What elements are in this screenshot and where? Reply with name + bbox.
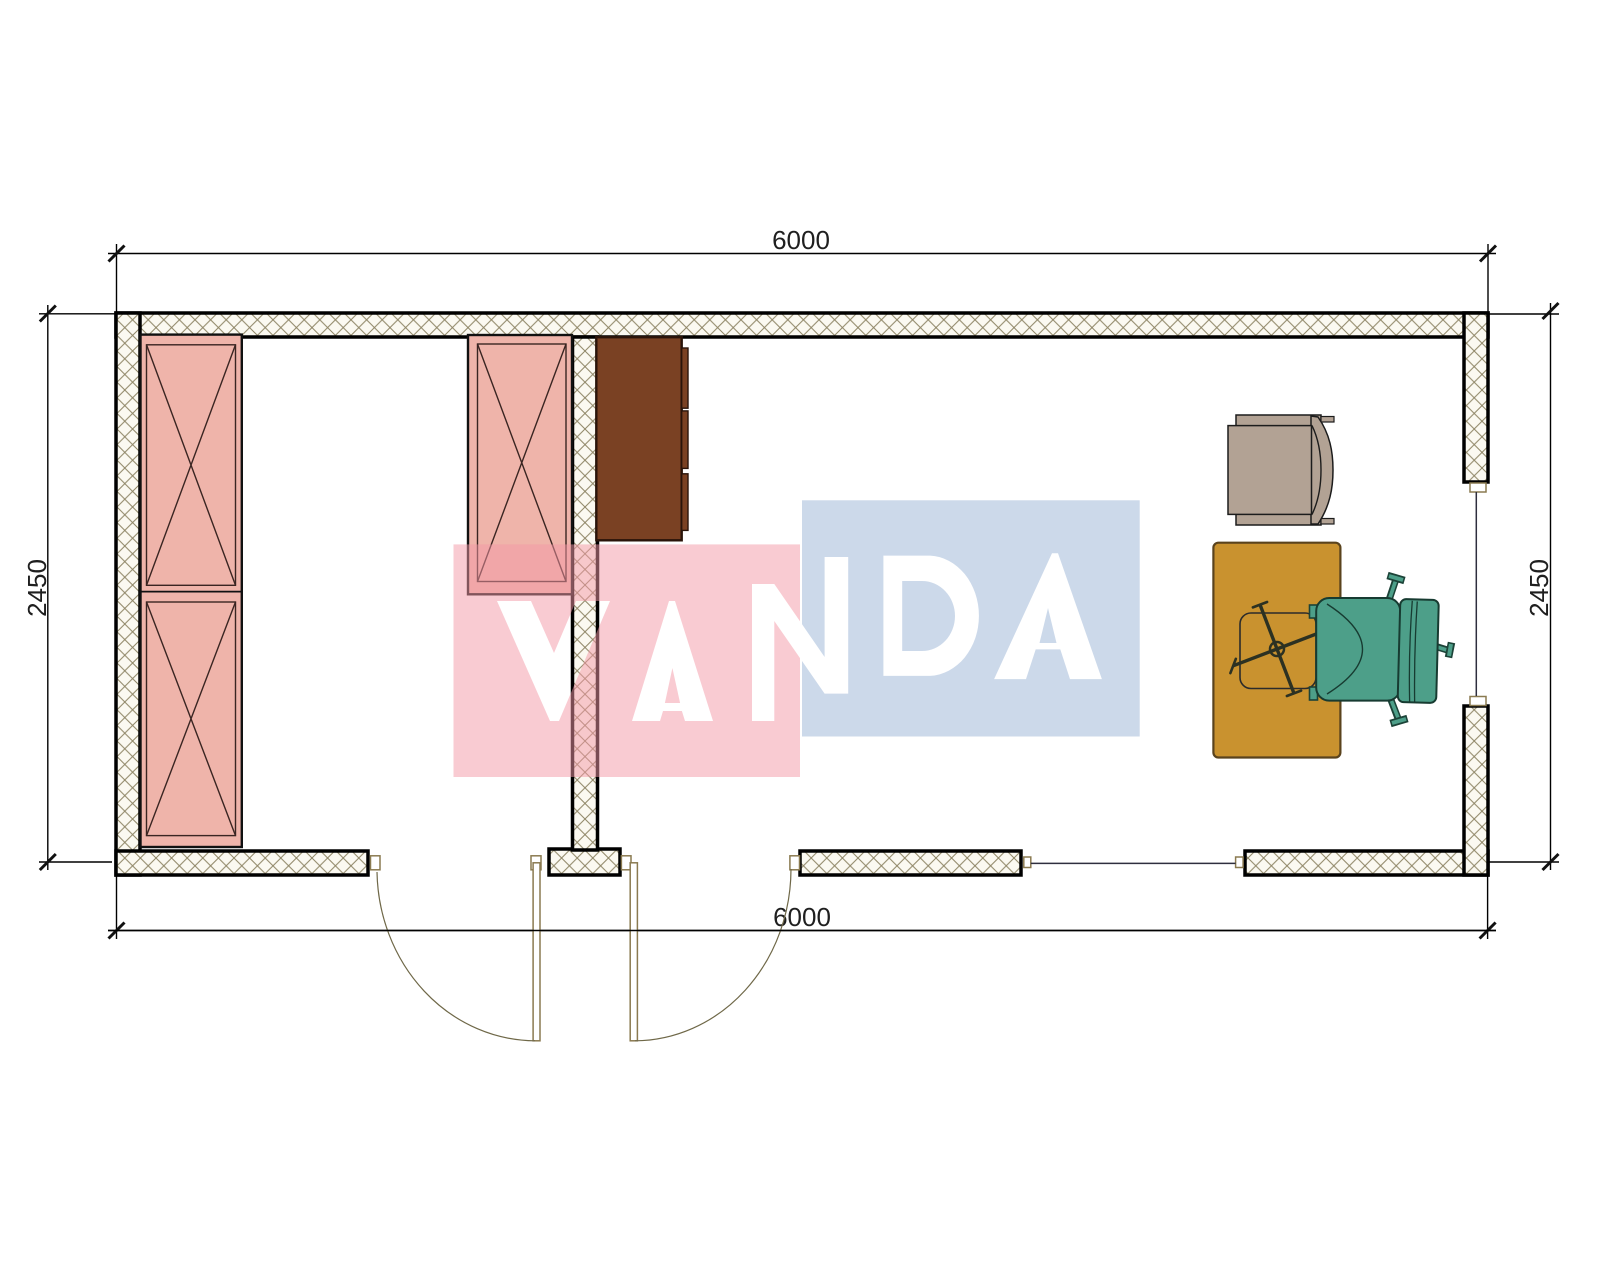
svg-text:2450: 2450 (22, 559, 52, 617)
svg-text:6000: 6000 (772, 225, 830, 255)
svg-text:2450: 2450 (1524, 559, 1554, 617)
